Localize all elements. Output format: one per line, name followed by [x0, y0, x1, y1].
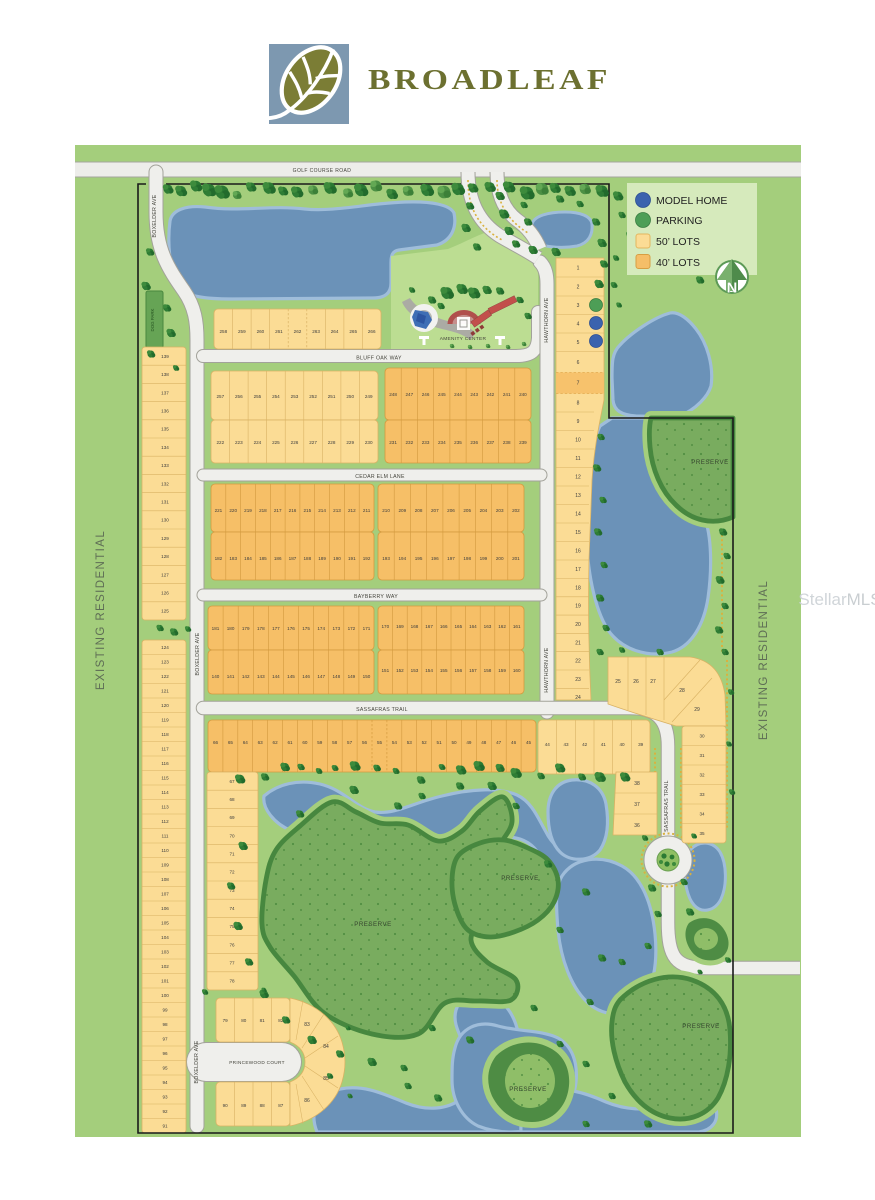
svg-text:176: 176 — [287, 626, 295, 631]
svg-text:233: 233 — [422, 440, 430, 445]
svg-text:57: 57 — [347, 740, 353, 745]
svg-text:62: 62 — [273, 740, 279, 745]
svg-text:238: 238 — [503, 440, 511, 445]
svg-text:237: 237 — [487, 440, 495, 445]
svg-text:256: 256 — [235, 394, 243, 399]
svg-text:264: 264 — [331, 329, 339, 334]
svg-text:180: 180 — [227, 626, 235, 631]
svg-text:49: 49 — [466, 740, 472, 745]
svg-text:140: 140 — [212, 674, 220, 679]
svg-text:117: 117 — [161, 747, 169, 752]
svg-text:111: 111 — [162, 834, 169, 839]
svg-text:43: 43 — [563, 742, 569, 747]
svg-text:174: 174 — [317, 626, 325, 631]
svg-text:113: 113 — [161, 805, 169, 810]
svg-text:158: 158 — [484, 668, 492, 673]
svg-text:159: 159 — [498, 668, 506, 673]
svg-text:PRESERVE: PRESERVE — [691, 459, 729, 466]
svg-text:32: 32 — [699, 773, 705, 778]
svg-text:142: 142 — [242, 674, 250, 679]
svg-text:201: 201 — [512, 556, 520, 561]
svg-text:202: 202 — [512, 508, 520, 513]
svg-text:143: 143 — [257, 674, 265, 679]
svg-text:PRINCEWOOD COURT: PRINCEWOOD COURT — [229, 1060, 285, 1065]
svg-text:244: 244 — [454, 392, 462, 397]
svg-text:161: 161 — [513, 624, 521, 629]
svg-text:164: 164 — [469, 624, 477, 629]
svg-text:165: 165 — [454, 624, 462, 629]
svg-text:156: 156 — [454, 668, 462, 673]
svg-text:229: 229 — [346, 440, 354, 445]
svg-text:83: 83 — [304, 1022, 310, 1028]
svg-text:70: 70 — [229, 833, 235, 838]
svg-text:126: 126 — [161, 591, 169, 596]
svg-text:HAWTHORN AVE: HAWTHORN AVE — [544, 297, 550, 342]
svg-text:206: 206 — [447, 508, 455, 513]
svg-text:108: 108 — [161, 877, 169, 882]
svg-text:219: 219 — [244, 508, 252, 513]
svg-text:150: 150 — [363, 674, 371, 679]
svg-text:258: 258 — [219, 329, 227, 334]
svg-text:241: 241 — [503, 392, 511, 397]
svg-text:208: 208 — [415, 508, 423, 513]
svg-text:266: 266 — [368, 329, 376, 334]
svg-text:245: 245 — [438, 392, 446, 397]
svg-text:76: 76 — [229, 942, 235, 947]
svg-text:42: 42 — [582, 742, 588, 747]
svg-text:182: 182 — [215, 556, 223, 561]
svg-text:251: 251 — [328, 394, 336, 399]
svg-text:28: 28 — [679, 688, 685, 694]
svg-text:172: 172 — [348, 626, 356, 631]
svg-text:58: 58 — [332, 740, 338, 745]
svg-text:189: 189 — [318, 556, 326, 561]
svg-text:90: 90 — [223, 1103, 229, 1108]
svg-text:138: 138 — [161, 372, 169, 377]
svg-text:209: 209 — [398, 508, 406, 513]
svg-text:121: 121 — [161, 689, 169, 694]
svg-text:129: 129 — [161, 536, 169, 541]
svg-text:97: 97 — [162, 1037, 168, 1042]
svg-text:124: 124 — [161, 645, 169, 650]
svg-text:5: 5 — [577, 340, 580, 346]
svg-text:39: 39 — [638, 742, 644, 747]
svg-text:255: 255 — [254, 394, 262, 399]
svg-text:228: 228 — [328, 440, 336, 445]
svg-text:114: 114 — [161, 790, 169, 795]
svg-text:51: 51 — [437, 740, 443, 745]
svg-text:157: 157 — [469, 668, 477, 673]
svg-text:212: 212 — [348, 508, 356, 513]
svg-text:EXISTING RESIDENTIAL: EXISTING RESIDENTIAL — [758, 580, 770, 740]
svg-text:65: 65 — [228, 740, 234, 745]
svg-text:170: 170 — [381, 624, 389, 629]
svg-text:193: 193 — [382, 556, 390, 561]
svg-text:StellarMLS: StellarMLS — [798, 590, 875, 609]
svg-text:184: 184 — [244, 556, 252, 561]
svg-text:22: 22 — [575, 659, 581, 665]
svg-text:87: 87 — [278, 1103, 284, 1108]
svg-text:40’ LOTS: 40’ LOTS — [656, 257, 700, 269]
svg-text:79: 79 — [223, 1018, 229, 1023]
svg-text:19: 19 — [575, 604, 581, 610]
svg-text:SASSAFRAS TRAIL: SASSAFRAS TRAIL — [356, 707, 408, 713]
svg-text:205: 205 — [463, 508, 471, 513]
svg-text:12: 12 — [575, 475, 581, 481]
svg-text:99: 99 — [162, 1008, 168, 1013]
svg-text:60: 60 — [302, 740, 308, 745]
svg-text:234: 234 — [438, 440, 446, 445]
svg-text:224: 224 — [254, 440, 262, 445]
svg-text:61: 61 — [287, 740, 293, 745]
svg-text:80: 80 — [241, 1018, 247, 1023]
svg-text:36: 36 — [634, 823, 640, 829]
svg-text:220: 220 — [229, 508, 237, 513]
svg-text:31: 31 — [699, 753, 705, 758]
svg-text:86: 86 — [304, 1098, 310, 1104]
svg-text:48: 48 — [481, 740, 487, 745]
svg-text:77: 77 — [229, 961, 235, 966]
svg-text:GOLF COURSE ROAD: GOLF COURSE ROAD — [293, 168, 352, 174]
svg-text:100: 100 — [161, 993, 169, 998]
svg-text:166: 166 — [440, 624, 448, 629]
svg-text:EXISTING RESIDENTIAL: EXISTING RESIDENTIAL — [95, 530, 107, 690]
svg-text:29: 29 — [694, 707, 700, 713]
svg-text:17: 17 — [575, 567, 581, 573]
svg-text:134: 134 — [161, 445, 169, 450]
svg-text:213: 213 — [333, 508, 341, 513]
svg-text:123: 123 — [161, 660, 169, 665]
svg-text:BOXELDER AVE: BOXELDER AVE — [152, 194, 158, 237]
svg-text:89: 89 — [241, 1103, 247, 1108]
svg-text:67: 67 — [229, 779, 235, 784]
svg-text:197: 197 — [447, 556, 455, 561]
svg-text:14: 14 — [575, 512, 581, 518]
svg-text:71: 71 — [229, 852, 235, 857]
svg-text:141: 141 — [227, 674, 235, 679]
svg-text:91: 91 — [162, 1124, 168, 1129]
svg-text:227: 227 — [309, 440, 317, 445]
svg-text:225: 225 — [272, 440, 280, 445]
svg-text:78: 78 — [229, 979, 235, 984]
svg-text:PRESERVE: PRESERVE — [509, 1086, 547, 1093]
svg-text:105: 105 — [161, 921, 169, 926]
svg-text:AMENITY CENTER: AMENITY CENTER — [440, 336, 487, 342]
svg-text:235: 235 — [454, 440, 462, 445]
svg-text:69: 69 — [229, 815, 235, 820]
svg-text:181: 181 — [212, 626, 220, 631]
svg-text:127: 127 — [161, 572, 169, 577]
svg-text:52: 52 — [422, 740, 428, 745]
svg-text:210: 210 — [382, 508, 390, 513]
svg-text:47: 47 — [496, 740, 502, 745]
svg-text:30: 30 — [699, 734, 705, 739]
svg-text:131: 131 — [161, 500, 169, 505]
svg-text:81: 81 — [260, 1018, 266, 1023]
svg-text:151: 151 — [381, 668, 389, 673]
svg-text:261: 261 — [275, 329, 283, 334]
svg-text:240: 240 — [519, 392, 527, 397]
svg-text:101: 101 — [161, 979, 169, 984]
svg-text:263: 263 — [312, 329, 320, 334]
svg-text:222: 222 — [216, 440, 224, 445]
svg-text:40: 40 — [619, 742, 625, 747]
svg-text:2: 2 — [577, 284, 580, 290]
svg-text:203: 203 — [496, 508, 504, 513]
svg-text:187: 187 — [289, 556, 297, 561]
svg-text:56: 56 — [362, 740, 368, 745]
svg-text:54: 54 — [392, 740, 398, 745]
svg-text:23: 23 — [575, 677, 581, 683]
svg-text:11: 11 — [575, 456, 580, 462]
svg-text:147: 147 — [317, 674, 325, 679]
svg-text:137: 137 — [161, 390, 169, 395]
svg-text:169: 169 — [396, 624, 404, 629]
svg-text:13: 13 — [575, 493, 581, 499]
svg-text:27: 27 — [650, 679, 656, 685]
svg-text:26: 26 — [633, 679, 639, 685]
svg-text:253: 253 — [291, 394, 299, 399]
svg-text:133: 133 — [161, 463, 169, 468]
svg-text:HAWTHORN AVE: HAWTHORN AVE — [544, 647, 550, 692]
svg-text:112: 112 — [161, 819, 169, 824]
svg-text:200: 200 — [496, 556, 504, 561]
svg-text:199: 199 — [480, 556, 488, 561]
svg-text:115: 115 — [161, 776, 169, 781]
svg-text:88: 88 — [260, 1103, 266, 1108]
svg-text:257: 257 — [216, 394, 224, 399]
svg-text:185: 185 — [259, 556, 267, 561]
svg-text:46: 46 — [511, 740, 517, 745]
svg-text:246: 246 — [422, 392, 430, 397]
svg-text:7: 7 — [577, 381, 580, 387]
svg-text:192: 192 — [363, 556, 371, 561]
svg-text:PARKING: PARKING — [656, 215, 702, 227]
svg-text:254: 254 — [272, 394, 280, 399]
svg-text:4: 4 — [577, 322, 580, 328]
svg-text:8: 8 — [577, 401, 580, 407]
svg-text:250: 250 — [346, 394, 354, 399]
svg-text:136: 136 — [161, 409, 169, 414]
svg-text:168: 168 — [411, 624, 419, 629]
svg-text:163: 163 — [484, 624, 492, 629]
svg-text:PRESERVE: PRESERVE — [501, 875, 539, 882]
svg-text:92: 92 — [162, 1109, 168, 1114]
svg-text:262: 262 — [294, 329, 302, 334]
svg-text:107: 107 — [161, 892, 169, 897]
svg-text:146: 146 — [302, 674, 310, 679]
svg-text:204: 204 — [480, 508, 488, 513]
svg-text:217: 217 — [274, 508, 282, 513]
svg-text:38: 38 — [634, 781, 640, 787]
svg-text:63: 63 — [258, 740, 264, 745]
svg-text:34: 34 — [699, 812, 705, 817]
svg-text:64: 64 — [243, 740, 249, 745]
svg-text:214: 214 — [318, 508, 326, 513]
svg-text:144: 144 — [272, 674, 280, 679]
svg-text:10: 10 — [575, 438, 581, 444]
svg-text:162: 162 — [498, 624, 506, 629]
svg-text:186: 186 — [274, 556, 282, 561]
svg-text:196: 196 — [431, 556, 439, 561]
svg-text:177: 177 — [272, 626, 280, 631]
svg-text:6: 6 — [577, 360, 580, 366]
svg-text:154: 154 — [425, 668, 433, 673]
svg-text:104: 104 — [161, 935, 169, 940]
svg-text:116: 116 — [161, 761, 169, 766]
svg-text:16: 16 — [575, 549, 581, 555]
svg-text:153: 153 — [411, 668, 419, 673]
svg-text:173: 173 — [332, 626, 340, 631]
svg-text:BOXELDER AVE: BOXELDER AVE — [194, 1040, 200, 1083]
svg-text:84: 84 — [323, 1044, 329, 1050]
svg-text:135: 135 — [161, 427, 169, 432]
svg-text:122: 122 — [161, 674, 169, 679]
svg-text:167: 167 — [425, 624, 433, 629]
svg-text:3: 3 — [577, 303, 580, 309]
svg-text:41: 41 — [601, 742, 607, 747]
svg-text:207: 207 — [431, 508, 439, 513]
svg-text:230: 230 — [365, 440, 373, 445]
svg-text:93: 93 — [162, 1095, 168, 1100]
svg-text:249: 249 — [365, 394, 373, 399]
svg-text:231: 231 — [389, 440, 397, 445]
svg-text:195: 195 — [415, 556, 423, 561]
svg-text:148: 148 — [332, 674, 340, 679]
svg-text:188: 188 — [303, 556, 311, 561]
svg-text:223: 223 — [235, 440, 243, 445]
svg-text:94: 94 — [162, 1080, 168, 1085]
svg-text:128: 128 — [161, 554, 169, 559]
svg-text:171: 171 — [363, 626, 371, 631]
svg-text:N: N — [727, 281, 737, 297]
svg-text:44: 44 — [545, 742, 551, 747]
svg-text:59: 59 — [317, 740, 323, 745]
svg-text:183: 183 — [229, 556, 237, 561]
svg-text:96: 96 — [162, 1051, 168, 1056]
svg-text:118: 118 — [161, 732, 169, 737]
svg-text:190: 190 — [333, 556, 341, 561]
svg-text:BOXELDER AVE: BOXELDER AVE — [195, 632, 201, 675]
svg-text:152: 152 — [396, 668, 404, 673]
svg-text:216: 216 — [289, 508, 297, 513]
svg-text:CEDAR ELM LANE: CEDAR ELM LANE — [355, 474, 405, 480]
svg-text:247: 247 — [405, 392, 413, 397]
svg-text:149: 149 — [348, 674, 356, 679]
svg-text:33: 33 — [699, 792, 705, 797]
svg-text:50’ LOTS: 50’ LOTS — [656, 236, 700, 248]
svg-text:DOG PARK: DOG PARK — [150, 309, 155, 332]
svg-text:179: 179 — [242, 626, 250, 631]
svg-text:243: 243 — [470, 392, 478, 397]
svg-text:132: 132 — [161, 481, 169, 486]
svg-text:21: 21 — [575, 640, 581, 646]
svg-text:18: 18 — [575, 585, 581, 591]
svg-text:242: 242 — [487, 392, 495, 397]
svg-text:9: 9 — [577, 419, 580, 425]
svg-text:191: 191 — [348, 556, 356, 561]
svg-text:236: 236 — [470, 440, 478, 445]
svg-text:106: 106 — [161, 906, 169, 911]
svg-text:194: 194 — [398, 556, 406, 561]
svg-text:139: 139 — [161, 354, 169, 359]
svg-text:211: 211 — [363, 508, 371, 513]
svg-text:45: 45 — [526, 740, 532, 745]
svg-text:35: 35 — [699, 831, 705, 836]
svg-text:BAYBERRY WAY: BAYBERRY WAY — [354, 594, 398, 600]
svg-text:259: 259 — [238, 329, 246, 334]
svg-text:260: 260 — [257, 329, 265, 334]
svg-text:218: 218 — [259, 508, 267, 513]
svg-text:103: 103 — [161, 950, 169, 955]
svg-text:130: 130 — [161, 518, 169, 523]
svg-text:55: 55 — [377, 740, 383, 745]
svg-text:215: 215 — [303, 508, 311, 513]
svg-text:239: 239 — [519, 440, 527, 445]
svg-text:248: 248 — [389, 392, 397, 397]
svg-text:20: 20 — [575, 622, 581, 628]
svg-text:MODEL HOME: MODEL HOME — [656, 195, 727, 207]
svg-text:198: 198 — [463, 556, 471, 561]
svg-text:66: 66 — [213, 740, 219, 745]
svg-text:PRESERVE: PRESERVE — [682, 1023, 720, 1030]
svg-text:119: 119 — [161, 718, 169, 723]
svg-text:102: 102 — [161, 964, 169, 969]
svg-text:68: 68 — [229, 797, 235, 802]
svg-text:175: 175 — [302, 626, 310, 631]
svg-text:221: 221 — [215, 508, 223, 513]
svg-text:109: 109 — [161, 863, 169, 868]
svg-text:25: 25 — [615, 679, 621, 685]
svg-text:110: 110 — [161, 848, 169, 853]
svg-text:265: 265 — [349, 329, 357, 334]
svg-text:125: 125 — [161, 609, 169, 614]
svg-text:120: 120 — [161, 703, 169, 708]
svg-text:53: 53 — [407, 740, 413, 745]
svg-text:BLUFF OAK WAY: BLUFF OAK WAY — [356, 356, 402, 362]
svg-text:24: 24 — [575, 695, 581, 701]
svg-text:252: 252 — [309, 394, 317, 399]
svg-text:226: 226 — [291, 440, 299, 445]
svg-text:232: 232 — [405, 440, 413, 445]
svg-text:50: 50 — [451, 740, 457, 745]
svg-text:15: 15 — [575, 530, 581, 536]
svg-text:95: 95 — [162, 1066, 168, 1071]
svg-text:155: 155 — [440, 668, 448, 673]
svg-text:PRESERVE: PRESERVE — [354, 921, 392, 928]
svg-text:145: 145 — [287, 674, 295, 679]
svg-text:178: 178 — [257, 626, 265, 631]
svg-text:72: 72 — [229, 870, 235, 875]
svg-text:1: 1 — [577, 265, 580, 271]
svg-text:160: 160 — [513, 668, 521, 673]
svg-text:74: 74 — [229, 906, 235, 911]
svg-text:98: 98 — [162, 1022, 168, 1027]
svg-text:BROADLEAF: BROADLEAF — [368, 65, 611, 96]
svg-text:SASSAFRAS TRAIL: SASSAFRAS TRAIL — [664, 780, 670, 832]
svg-text:37: 37 — [634, 802, 640, 808]
